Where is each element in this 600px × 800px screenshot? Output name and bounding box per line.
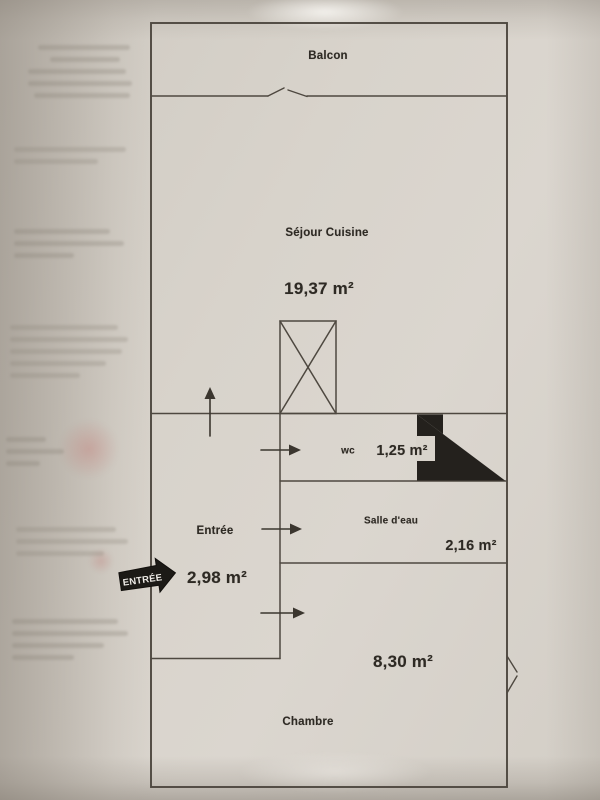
outer-walls xyxy=(151,23,507,787)
opening-notch-icon xyxy=(507,656,517,693)
room-label-sejour: Séjour Cuisine xyxy=(285,227,368,239)
entrance-arrow-badge: ENTRÉE xyxy=(116,556,182,602)
room-area-chambre: 8,30 m² xyxy=(373,652,433,672)
room-label-chambre: Chambre xyxy=(282,716,333,728)
floorplan-drawing xyxy=(0,0,600,800)
black-triangle-icon xyxy=(416,415,505,481)
opening-notch-icon xyxy=(268,88,307,97)
crossed-box-shaft-icon xyxy=(280,321,336,414)
up-arrow-icon xyxy=(205,387,216,436)
room-label-balcon: Balcon xyxy=(308,50,348,62)
right-arrow-icon xyxy=(261,608,305,619)
room-area-entree: 2,98 m² xyxy=(187,568,247,588)
photographed-floorplan-page: Balcon Séjour Cuisine 19,37 m² wc 1,25 m… xyxy=(0,0,600,800)
room-label-wc: wc xyxy=(341,446,355,457)
room-label-entree: Entrée xyxy=(197,525,234,537)
right-arrow-icon xyxy=(261,445,301,456)
room-area-salle-eau: 2,16 m² xyxy=(445,538,496,554)
room-label-salle-eau: Salle d'eau xyxy=(364,516,418,527)
right-arrow-icon xyxy=(262,524,302,535)
room-area-sejour: 19,37 m² xyxy=(284,279,354,299)
room-area-wc: 1,25 m² xyxy=(376,443,427,459)
